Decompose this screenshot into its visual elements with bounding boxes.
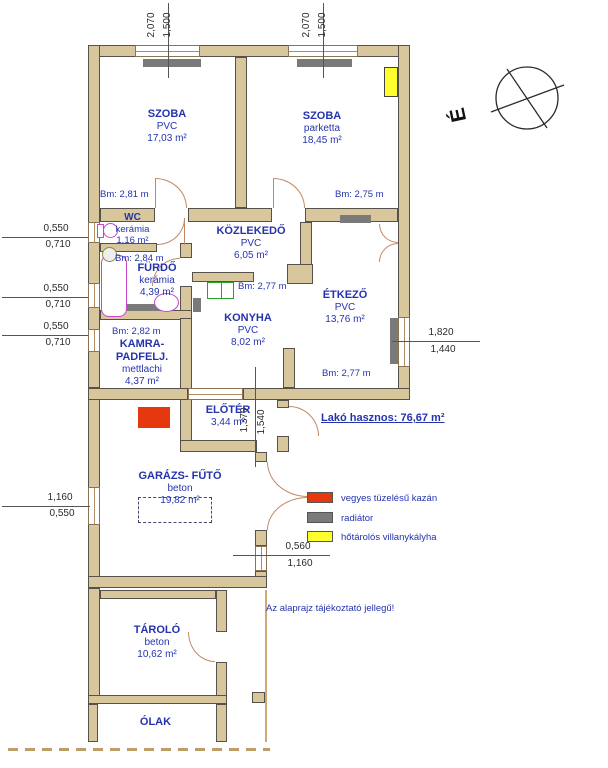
room-floor: PVC xyxy=(309,302,381,314)
room-label-konyha: KONYHA PVC 8,02 m² xyxy=(212,312,284,349)
wall xyxy=(88,388,188,400)
room-label-eloter: ELŐTÉR 3,44 m² xyxy=(198,404,258,429)
room-label-etkezo: ÉTKEZŐ PVC 13,76 m² xyxy=(309,289,381,326)
room-name: PADFELJ. xyxy=(104,351,180,364)
wall xyxy=(300,222,312,265)
room-floor: PVC xyxy=(117,121,217,133)
room-label-kamra: KAMRA- PADFELJ. mettlachi 4,37 m² xyxy=(104,338,180,388)
fence-post xyxy=(252,692,265,703)
window xyxy=(88,329,100,352)
door-arc xyxy=(273,178,305,208)
room-area: 4,39 m² xyxy=(122,287,192,299)
room-height: Bm: 2,81 m xyxy=(100,189,149,200)
dim-label: 1,440 xyxy=(420,344,466,355)
window xyxy=(88,283,100,308)
room-label-wc: WC kerámia 1,16 m² xyxy=(105,212,160,247)
radiator xyxy=(340,215,371,223)
dimension-line xyxy=(2,297,88,298)
room-area: 4,37 m² xyxy=(104,376,180,388)
wall xyxy=(188,208,272,222)
total-area-label: Lakó hasznos: 76,67 m² xyxy=(321,412,451,425)
wall xyxy=(243,388,410,400)
room-label-furdo: FÜRDŐ kerámia 4,39 m² xyxy=(122,262,192,299)
room-height: Bm: 2,77 m xyxy=(322,368,371,379)
room-name: GARÁZS- FŰTŐ xyxy=(130,470,230,483)
dim-label: 1,500 xyxy=(162,3,174,47)
room-name: SZOBA xyxy=(117,108,217,121)
dim-label: 0,710 xyxy=(38,337,78,348)
garage-door-arc xyxy=(267,462,308,497)
window xyxy=(255,546,267,571)
room-area: 6,05 m² xyxy=(212,250,290,262)
room-floor: parketta xyxy=(272,123,372,135)
dim-label: 2,070 xyxy=(146,3,158,47)
wall xyxy=(100,590,216,599)
wall xyxy=(255,452,267,462)
room-label-olak: ÓLAK xyxy=(128,716,183,729)
room-floor: mettlachi xyxy=(104,364,180,376)
door-arc xyxy=(379,224,398,243)
compass-north-letter: É xyxy=(443,93,473,137)
plot-dashed-line xyxy=(8,748,270,751)
dim-label: 0,550 xyxy=(36,283,76,294)
room-floor: kerámia xyxy=(122,275,192,287)
room-label-szoba-right: SZOBA parketta 18,45 m² xyxy=(272,110,372,147)
room-area: 1,16 m² xyxy=(105,235,160,246)
wall xyxy=(88,695,227,704)
room-floor: PVC xyxy=(212,238,290,250)
room-name: TÁROLÓ xyxy=(112,624,202,637)
dim-label: 2,070 xyxy=(301,3,313,47)
room-name: KÖZLEKEDŐ xyxy=(212,225,290,238)
room-name: ELŐTÉR xyxy=(198,404,258,417)
door-leaf xyxy=(184,218,185,245)
room-area: 8,02 m² xyxy=(212,337,284,349)
dim-label: 0,710 xyxy=(38,239,78,250)
dim-label: 1,500 xyxy=(317,3,329,47)
dimension-line xyxy=(2,335,88,336)
plan-note: Az alaprajz tájékoztató jellegű! xyxy=(266,603,416,614)
room-label-tarolo: TÁROLÓ beton 10,62 m² xyxy=(112,624,202,661)
dim-label: 0,550 xyxy=(36,223,76,234)
dim-label: 0,560 xyxy=(268,541,328,552)
dim-label: 1,820 xyxy=(418,327,464,338)
dimension-line xyxy=(2,506,90,507)
legend-swatch-boiler xyxy=(307,492,333,503)
room-area: 3,44 m² xyxy=(198,417,258,429)
door-arc xyxy=(379,243,398,262)
room-label-szoba-left: SZOBA PVC 17,03 m² xyxy=(117,108,217,145)
door-arc xyxy=(155,178,187,208)
wall xyxy=(180,318,192,452)
front-door-arc xyxy=(289,406,319,436)
wall xyxy=(88,588,100,698)
door-arc xyxy=(157,218,185,245)
legend-swatch-radiator xyxy=(307,512,333,523)
legend-swatch-heater xyxy=(307,531,333,542)
wall xyxy=(235,57,247,208)
dim-label: 0,550 xyxy=(42,508,82,519)
room-height: Bm: 2,82 m xyxy=(112,326,161,337)
radiator xyxy=(143,59,201,67)
room-area: 10,62 m² xyxy=(112,649,202,661)
room-label-kozlekedo: KÖZLEKEDŐ PVC 6,05 m² xyxy=(212,225,290,262)
room-area: 18,45 m² xyxy=(272,135,372,147)
compass-icon xyxy=(483,54,571,142)
dim-label: 1,160 xyxy=(270,558,330,569)
room-area: 19,82 m² xyxy=(130,495,230,507)
legend-label-radiator: radiátor xyxy=(341,513,373,524)
door-leaf xyxy=(273,178,274,208)
dim-label: 0,550 xyxy=(36,321,76,332)
wall xyxy=(216,704,227,742)
wall xyxy=(255,530,267,546)
room-name: KONYHA xyxy=(212,312,284,325)
sink-divider xyxy=(221,283,223,298)
electric-heater xyxy=(384,67,398,97)
wall xyxy=(216,590,227,632)
wall xyxy=(277,400,289,408)
wall xyxy=(180,243,192,258)
interior-window xyxy=(188,388,243,400)
boiler xyxy=(138,407,170,428)
room-name: FÜRDŐ xyxy=(122,262,192,275)
radiator xyxy=(297,59,352,67)
room-area: 13,76 m² xyxy=(309,314,381,326)
room-name: SZOBA xyxy=(272,110,372,123)
floor-plan: 2,070 1,500 2,070 1,500 0,550 0,710 0,55… xyxy=(0,0,608,768)
wall xyxy=(88,576,267,588)
wall xyxy=(88,704,98,742)
room-area: 17,03 m² xyxy=(117,133,217,145)
dimension-line xyxy=(392,341,480,342)
legend-label-heater: hőtárolós villanykályha xyxy=(341,532,437,543)
radiator xyxy=(193,298,201,312)
room-label-garazs: GARÁZS- FŰTŐ beton 19,82 m² xyxy=(130,470,230,507)
room-floor: kerámia xyxy=(105,224,160,235)
wall xyxy=(277,436,289,452)
garage-door-arc xyxy=(267,497,308,530)
room-name: KAMRA- xyxy=(104,338,180,351)
window xyxy=(398,317,410,367)
dim-label: 0,710 xyxy=(38,299,78,310)
door-leaf xyxy=(155,178,156,208)
dimension-line xyxy=(2,237,88,238)
dim-label: 1,160 xyxy=(40,492,80,503)
chimney xyxy=(287,264,313,284)
wall xyxy=(283,348,295,388)
room-height: Bm: 2,77 m xyxy=(238,281,287,292)
room-height: Bm: 2,75 m xyxy=(335,189,384,200)
wall xyxy=(216,662,227,698)
kitchen-sink xyxy=(207,282,234,299)
dimension-line xyxy=(233,555,330,556)
legend-label-boiler: vegyes tüzelésű kazán xyxy=(341,493,437,504)
room-floor: PVC xyxy=(212,325,284,337)
room-name: WC xyxy=(105,212,160,224)
room-floor: beton xyxy=(112,637,202,649)
room-floor: beton xyxy=(130,483,230,495)
room-name: ÉTKEZŐ xyxy=(309,289,381,302)
